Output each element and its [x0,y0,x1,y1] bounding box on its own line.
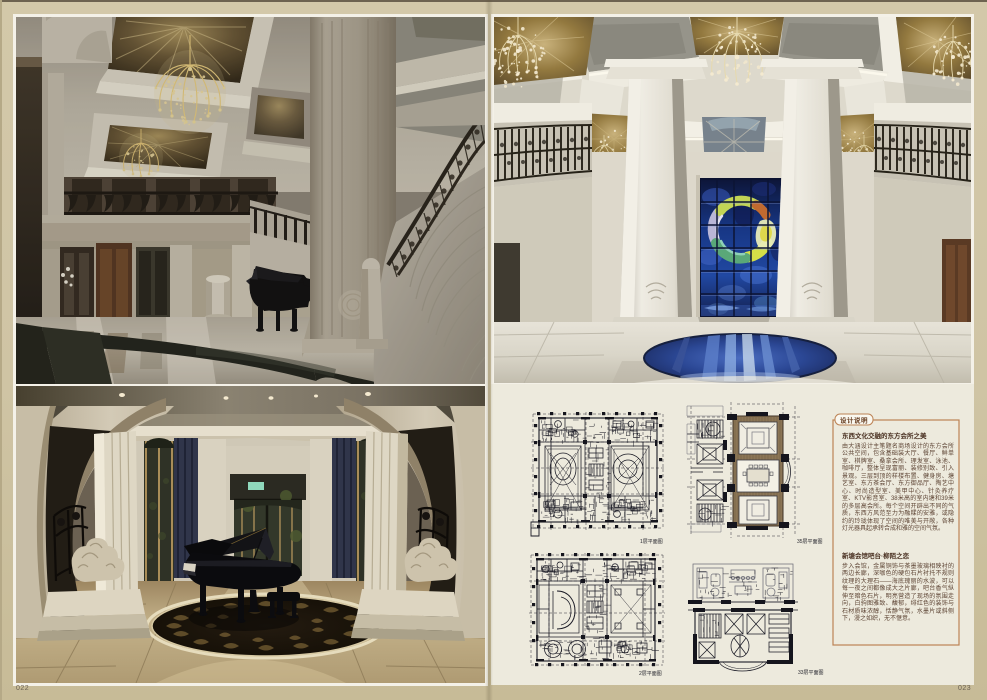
svg-text:设计说明: 设计说明 [840,416,868,425]
svg-text:2层平面图: 2层平面图 [639,671,662,677]
svg-text:33层平面图: 33层平面图 [798,670,824,676]
svg-text:35层平面图: 35层平面图 [797,539,823,545]
svg-text:1层平面图: 1层平面图 [640,539,663,545]
